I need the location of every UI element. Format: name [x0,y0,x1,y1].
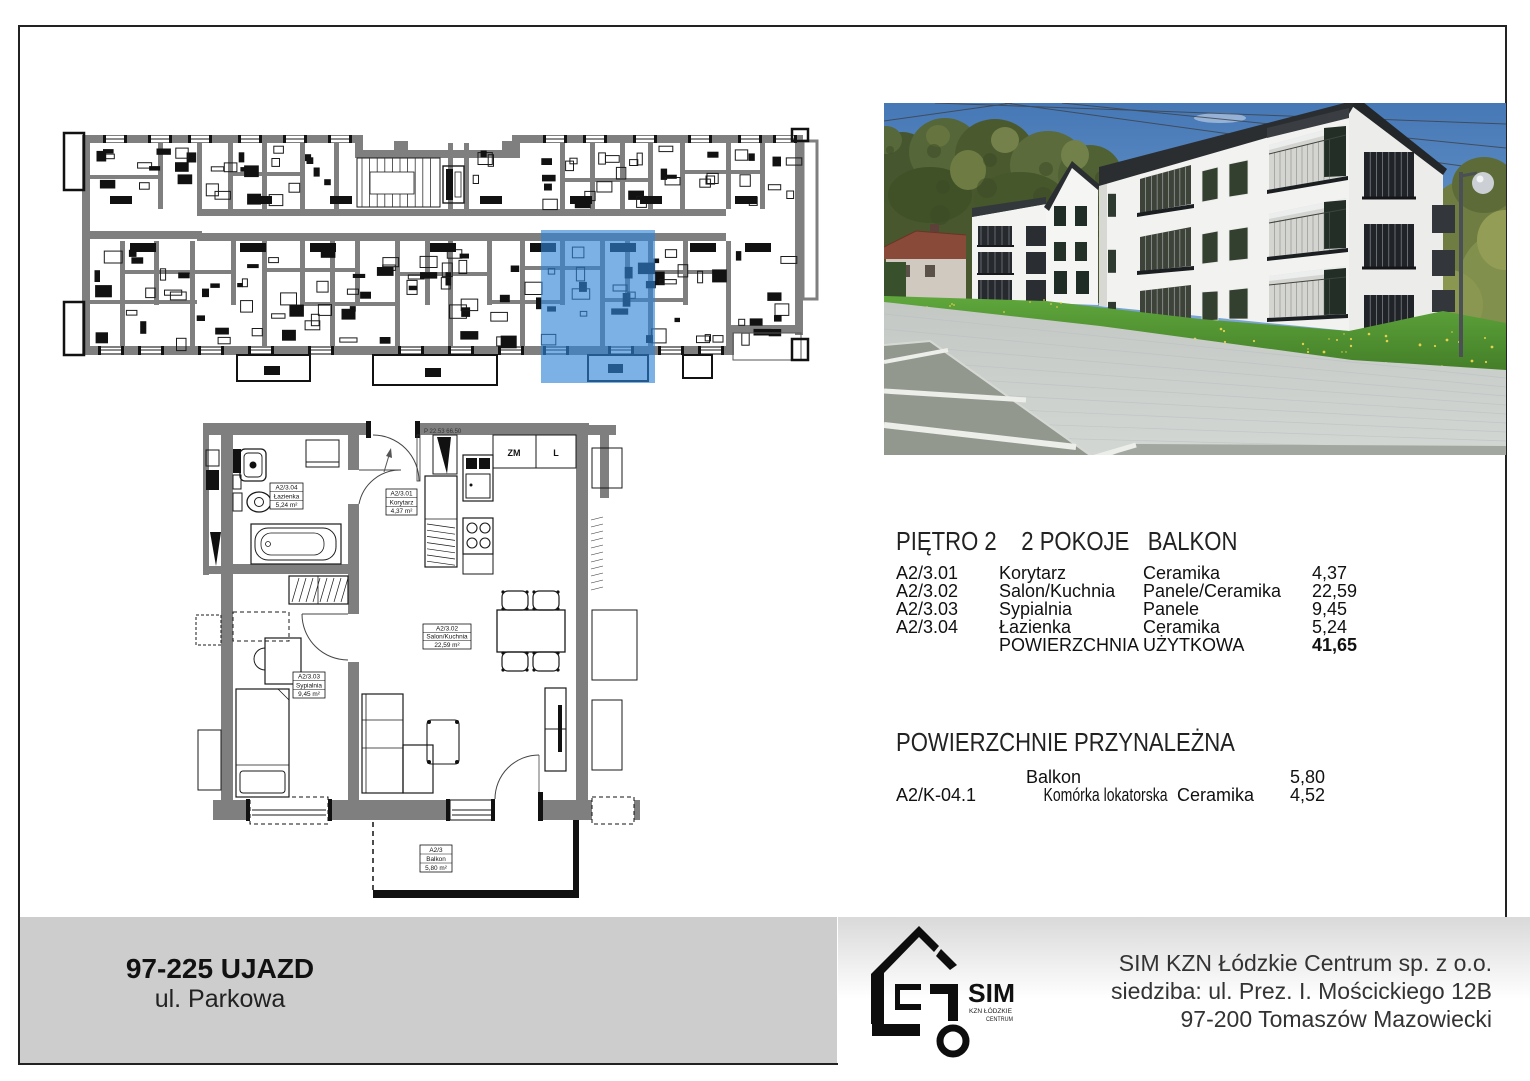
svg-text:L: L [553,448,559,458]
svg-text:A2/3.01: A2/3.01 [390,491,412,498]
svg-text:P 22.53 66.50: P 22.53 66.50 [424,429,462,435]
svg-text:A2/3: A2/3 [429,847,443,854]
svg-text:Salon/Kuchnia: Salon/Kuchnia [426,634,468,641]
svg-text:Łazienka: Łazienka [274,493,300,500]
svg-text:Balkon: Balkon [426,856,446,863]
svg-text:ZM: ZM [508,448,521,458]
svg-text:4,37 m²: 4,37 m² [391,508,413,515]
svg-text:CENTRUM: CENTRUM [986,1017,1013,1023]
svg-text:5,24 m²: 5,24 m² [276,502,298,509]
svg-text:KZN ŁÓDZKIE: KZN ŁÓDZKIE [969,1006,1013,1015]
svg-text:22,59 m²: 22,59 m² [434,642,459,649]
svg-text:5,80 m²: 5,80 m² [425,865,447,872]
svg-text:A2/3.04: A2/3.04 [275,485,297,492]
svg-text:SIM: SIM [968,978,1015,1008]
svg-text:Korytarz: Korytarz [390,499,414,506]
svg-text:A2/3.03: A2/3.03 [298,674,320,681]
svg-text:A2/3.02: A2/3.02 [436,625,458,632]
svg-text:9,45 m²: 9,45 m² [298,691,320,698]
svg-text:Sypialnia: Sypialnia [296,682,322,689]
